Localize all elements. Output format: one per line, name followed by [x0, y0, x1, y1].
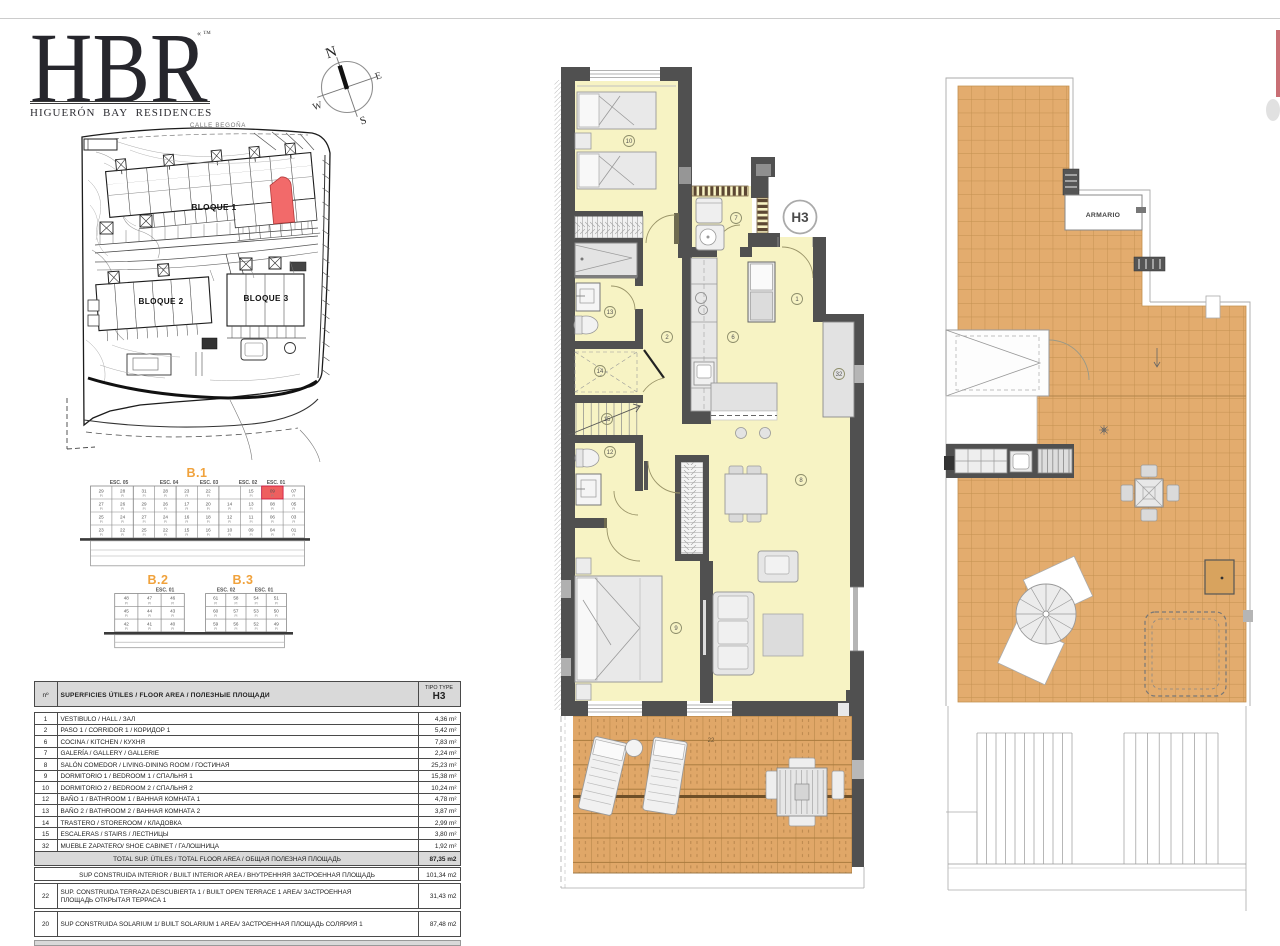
svg-text:17: 17 [184, 501, 190, 506]
svg-text:B.1: B.1 [187, 466, 208, 480]
svg-text:Pl: Pl [250, 520, 253, 524]
svg-text:48: 48 [124, 596, 130, 601]
svg-text:18: 18 [206, 514, 212, 519]
svg-text:Pl: Pl [214, 601, 217, 605]
svg-text:Pl: Pl [255, 614, 258, 618]
svg-text:Pl: Pl [143, 533, 146, 537]
svg-text:09: 09 [248, 527, 254, 532]
svg-text:ESC. 01: ESC. 01 [267, 480, 286, 486]
svg-text:Pl: Pl [234, 614, 237, 618]
svg-text:BLOQUE 3: BLOQUE 3 [243, 294, 288, 303]
svg-text:Pl: Pl [271, 533, 274, 537]
svg-text:01: 01 [291, 527, 297, 532]
svg-text:Pl: Pl [234, 601, 237, 605]
svg-text:Pl: Pl [207, 494, 210, 498]
svg-text:40: 40 [170, 621, 176, 626]
svg-text:32: 32 [836, 372, 843, 378]
svg-text:Pl: Pl [148, 614, 151, 618]
svg-text:07: 07 [291, 488, 297, 493]
svg-text:26: 26 [163, 501, 169, 506]
svg-text:Pl: Pl [228, 507, 231, 511]
svg-text:N: N [324, 44, 340, 63]
svg-text:Pl: Pl [207, 520, 210, 524]
svg-text:53: 53 [254, 609, 260, 614]
svg-text:Pl: Pl [228, 533, 231, 537]
svg-text:ESC. 03: ESC. 03 [200, 480, 219, 486]
svg-text:Pl: Pl [275, 601, 278, 605]
svg-text:B.3: B.3 [233, 573, 254, 587]
svg-text:Pl: Pl [100, 507, 103, 511]
svg-text:11: 11 [249, 514, 254, 519]
svg-text:Pl: Pl [143, 494, 146, 498]
svg-text:Pl: Pl [125, 627, 128, 631]
svg-text:Pl: Pl [125, 614, 128, 618]
svg-text:Pl: Pl [214, 627, 217, 631]
svg-text:22: 22 [120, 527, 126, 532]
svg-text:13: 13 [607, 310, 614, 316]
svg-text:Pl: Pl [292, 494, 295, 498]
svg-text:Pl: Pl [148, 627, 151, 631]
svg-text:Pl: Pl [125, 601, 128, 605]
svg-text:E: E [374, 70, 383, 82]
svg-text:16: 16 [206, 527, 212, 532]
svg-text:Pl: Pl [255, 601, 258, 605]
svg-text:24: 24 [120, 514, 126, 519]
svg-text:56: 56 [233, 621, 239, 626]
svg-text:ESC. 02: ESC. 02 [217, 588, 236, 594]
svg-text:Pl: Pl [171, 601, 174, 605]
svg-text:27: 27 [141, 514, 147, 519]
svg-text:Pl: Pl [292, 520, 295, 524]
svg-text:Pl: Pl [185, 520, 188, 524]
svg-text:Pl: Pl [121, 520, 124, 524]
svg-text:29: 29 [141, 501, 147, 506]
svg-text:Pl: Pl [185, 494, 188, 498]
svg-text:Pl: Pl [271, 494, 274, 498]
svg-text:28: 28 [120, 488, 126, 493]
svg-text:15: 15 [184, 527, 190, 532]
svg-text:Pl: Pl [164, 507, 167, 511]
svg-text:06: 06 [270, 514, 276, 519]
svg-text:ESC. 01: ESC. 01 [156, 588, 175, 594]
svg-text:60: 60 [213, 609, 219, 614]
svg-text:Pl: Pl [292, 507, 295, 511]
svg-text:ESC. 04: ESC. 04 [160, 480, 179, 486]
svg-text:23: 23 [99, 527, 105, 532]
svg-text:14: 14 [597, 369, 604, 375]
svg-text:43: 43 [170, 609, 176, 614]
svg-text:Pl: Pl [185, 533, 188, 537]
svg-text:29: 29 [99, 488, 105, 493]
svg-text:Pl: Pl [214, 614, 217, 618]
svg-text:08: 08 [270, 501, 276, 506]
svg-text:BLOQUE 2: BLOQUE 2 [138, 297, 183, 306]
svg-text:ARMARIO: ARMARIO [1086, 212, 1121, 219]
svg-text:03: 03 [291, 514, 297, 519]
svg-text:61: 61 [213, 596, 219, 601]
svg-text:25: 25 [99, 514, 105, 519]
svg-text:24: 24 [163, 514, 169, 519]
svg-text:23: 23 [184, 488, 190, 493]
svg-text:Pl: Pl [228, 520, 231, 524]
svg-text:26: 26 [120, 501, 126, 506]
svg-text:ESC. 02: ESC. 02 [239, 480, 258, 486]
svg-text:51: 51 [274, 596, 280, 601]
svg-text:Pl: Pl [121, 507, 124, 511]
svg-text:28: 28 [163, 488, 169, 493]
svg-text:CALLE BEGOÑA: CALLE BEGOÑA [190, 122, 246, 129]
svg-text:Pl: Pl [271, 507, 274, 511]
svg-text:Pl: Pl [164, 533, 167, 537]
svg-text:B.2: B.2 [148, 573, 169, 587]
svg-text:S: S [358, 114, 368, 127]
svg-text:Pl: Pl [171, 614, 174, 618]
svg-text:Pl: Pl [100, 494, 103, 498]
svg-text:Pl: Pl [164, 494, 167, 498]
svg-text:Pl: Pl [143, 520, 146, 524]
svg-text:Pl: Pl [207, 507, 210, 511]
svg-text:59: 59 [213, 621, 219, 626]
svg-text:22: 22 [708, 738, 715, 744]
svg-text:27: 27 [99, 501, 105, 506]
svg-text:Pl: Pl [100, 520, 103, 524]
svg-text:Pl: Pl [100, 533, 103, 537]
svg-text:12: 12 [607, 450, 614, 456]
svg-text:BLOQUE 1: BLOQUE 1 [191, 203, 236, 212]
svg-text:04: 04 [270, 527, 276, 532]
svg-text:Pl: Pl [185, 507, 188, 511]
svg-text:57: 57 [233, 609, 239, 614]
svg-text:Pl: Pl [171, 627, 174, 631]
svg-text:Pl: Pl [250, 533, 253, 537]
svg-text:Pl: Pl [143, 507, 146, 511]
svg-text:58: 58 [233, 596, 239, 601]
svg-text:15: 15 [604, 417, 611, 423]
svg-text:Pl: Pl [250, 507, 253, 511]
svg-text:Pl: Pl [275, 614, 278, 618]
svg-text:Pl: Pl [148, 601, 151, 605]
svg-text:49: 49 [274, 621, 280, 626]
svg-text:Pl: Pl [271, 520, 274, 524]
svg-text:12: 12 [227, 514, 233, 519]
svg-text:Pl: Pl [275, 627, 278, 631]
svg-text:10: 10 [227, 527, 233, 532]
svg-text:H3: H3 [791, 210, 809, 225]
svg-text:Pl: Pl [234, 627, 237, 631]
svg-text:10: 10 [626, 139, 633, 145]
svg-text:15: 15 [248, 488, 254, 493]
svg-text:50: 50 [274, 609, 280, 614]
svg-text:ESC. 05: ESC. 05 [110, 480, 129, 486]
svg-text:09: 09 [270, 488, 276, 493]
svg-text:Pl: Pl [292, 533, 295, 537]
svg-text:Pl: Pl [121, 533, 124, 537]
svg-text:Pl: Pl [121, 494, 124, 498]
svg-text:45: 45 [124, 609, 130, 614]
svg-text:41: 41 [147, 621, 153, 626]
svg-text:14: 14 [227, 501, 233, 506]
svg-text:05: 05 [291, 501, 297, 506]
svg-text:Pl: Pl [250, 494, 253, 498]
svg-text:25: 25 [141, 527, 147, 532]
svg-text:W: W [311, 100, 324, 114]
svg-text:Pl: Pl [207, 533, 210, 537]
svg-text:20: 20 [206, 501, 212, 506]
svg-text:44: 44 [147, 609, 153, 614]
svg-text:Pl: Pl [255, 627, 258, 631]
svg-text:42: 42 [124, 621, 130, 626]
svg-text:54: 54 [254, 596, 260, 601]
svg-text:16: 16 [184, 514, 190, 519]
svg-text:13: 13 [248, 501, 254, 506]
svg-text:52: 52 [254, 621, 260, 626]
svg-text:22: 22 [163, 527, 169, 532]
svg-text:ESC. 01: ESC. 01 [255, 588, 274, 594]
svg-text:Pl: Pl [164, 520, 167, 524]
svg-text:47: 47 [147, 596, 153, 601]
svg-text:22: 22 [206, 488, 212, 493]
svg-text:46: 46 [170, 596, 176, 601]
svg-text:31: 31 [141, 488, 147, 493]
